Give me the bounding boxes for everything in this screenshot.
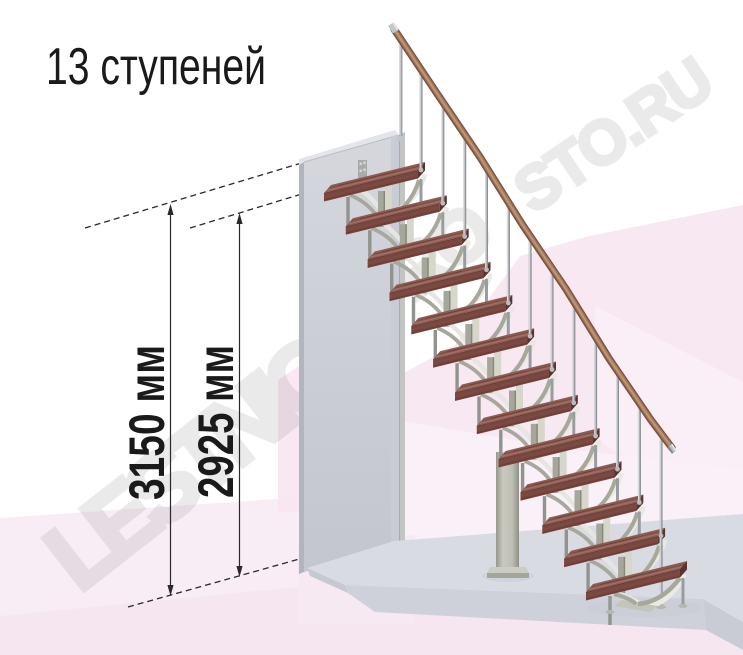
svg-text:2925 мм: 2925 мм xyxy=(188,345,244,498)
svg-text:13 ступеней: 13 ступеней xyxy=(46,38,266,96)
svg-text:3150 мм: 3150 мм xyxy=(119,345,175,500)
